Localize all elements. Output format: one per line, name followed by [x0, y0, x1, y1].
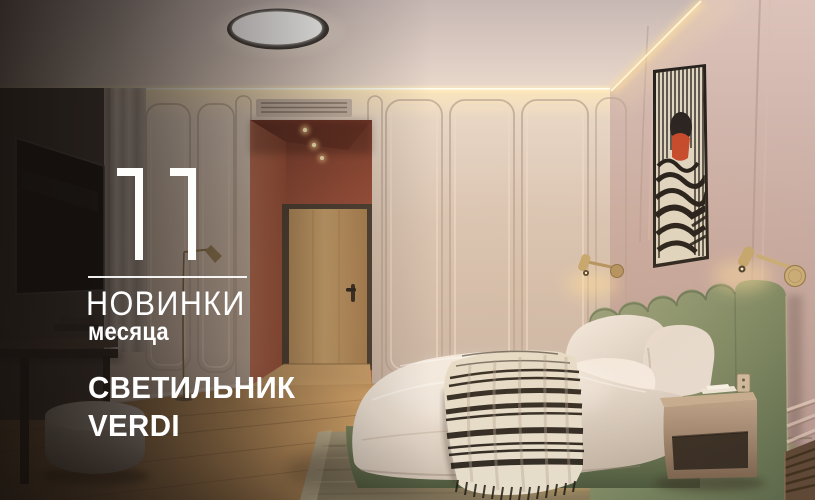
promo-subtitle: месяца — [88, 318, 169, 347]
product-name-line1: СВЕТИЛЬНИК — [88, 369, 295, 407]
promo-banner: НОВИНКИ месяца СВЕТИЛЬНИК VERDI — [0, 0, 815, 500]
product-name: СВЕТИЛЬНИК VERDI — [88, 369, 295, 445]
digit — [170, 168, 196, 260]
digit — [117, 168, 143, 260]
product-name-line2: VERDI — [88, 407, 295, 445]
divider-line — [88, 276, 247, 278]
promo-text-block: НОВИНКИ месяца СВЕТИЛЬНИК VERDI — [0, 0, 815, 500]
promo-number — [117, 168, 196, 260]
